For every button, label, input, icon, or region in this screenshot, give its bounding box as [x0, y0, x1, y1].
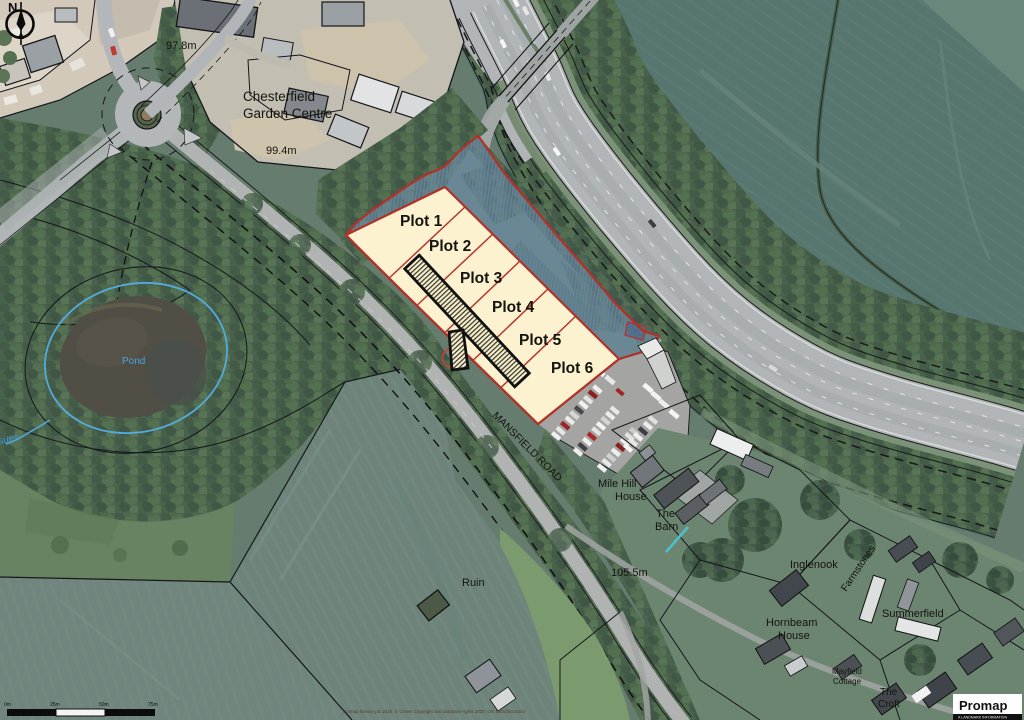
- svg-text:Plot 2: Plot 2: [429, 238, 471, 255]
- svg-text:Cottage: Cottage: [833, 677, 862, 686]
- svg-text:Ruin: Ruin: [462, 577, 485, 589]
- svg-text:Promap: Promap: [959, 698, 1007, 713]
- svg-text:75m: 75m: [148, 702, 158, 708]
- svg-text:Summerfield: Summerfield: [882, 608, 944, 620]
- svg-text:97.8m: 97.8m: [166, 40, 197, 52]
- svg-text:25m: 25m: [50, 702, 60, 708]
- svg-text:Plot 3: Plot 3: [460, 270, 503, 287]
- svg-text:Barn: Barn: [655, 521, 678, 533]
- svg-text:Mile Hill: Mile Hill: [598, 478, 637, 490]
- svg-text:Pond: Pond: [122, 356, 145, 367]
- svg-text:Croft: Croft: [878, 699, 900, 710]
- svg-text:Plot 6: Plot 6: [551, 360, 594, 377]
- svg-text:Promap licence plc 2020. © Cro: Promap licence plc 2020. © Crown Copyrig…: [343, 708, 526, 714]
- svg-text:House: House: [778, 630, 810, 642]
- svg-text:Plot 4: Plot 4: [492, 299, 535, 316]
- svg-text:N: N: [8, 0, 17, 15]
- svg-text:0m: 0m: [4, 702, 11, 708]
- svg-text:The: The: [880, 687, 898, 698]
- svg-text:Chesterfield: Chesterfield: [243, 89, 315, 104]
- svg-text:Hornbeam: Hornbeam: [766, 617, 817, 629]
- svg-text:105.5m: 105.5m: [611, 567, 648, 579]
- svg-text:Plot 1: Plot 1: [400, 213, 443, 230]
- svg-text:House: House: [615, 491, 647, 503]
- svg-text:Mayfield: Mayfield: [832, 667, 862, 676]
- svg-text:Garden Centre: Garden Centre: [243, 106, 332, 121]
- svg-text:A LANDMARK INFORMATION: A LANDMARK INFORMATION: [958, 716, 1007, 720]
- svg-text:The: The: [656, 508, 675, 520]
- svg-text:50m: 50m: [99, 702, 109, 708]
- svg-text:Inglenook: Inglenook: [790, 559, 838, 571]
- svg-text:99.4m: 99.4m: [266, 145, 297, 157]
- svg-text:Plot 5: Plot 5: [519, 332, 562, 349]
